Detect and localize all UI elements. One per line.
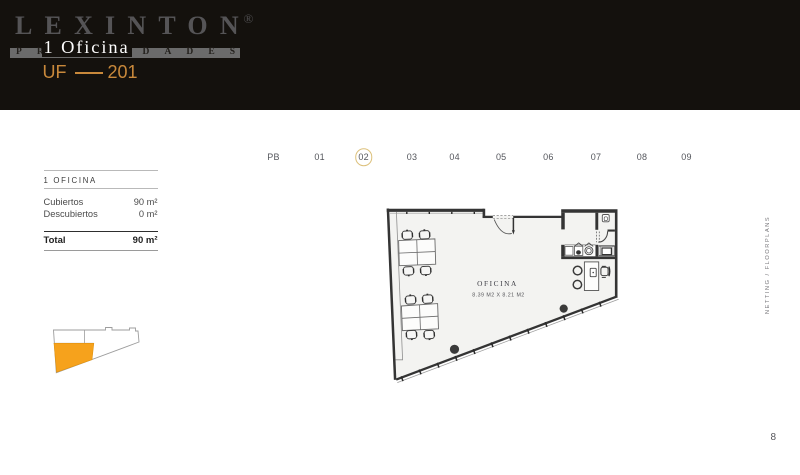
svg-text:OFICINA: OFICINA	[477, 279, 518, 288]
svg-text:8.39 M2 X 8.21 M2: 8.39 M2 X 8.21 M2	[472, 292, 524, 298]
